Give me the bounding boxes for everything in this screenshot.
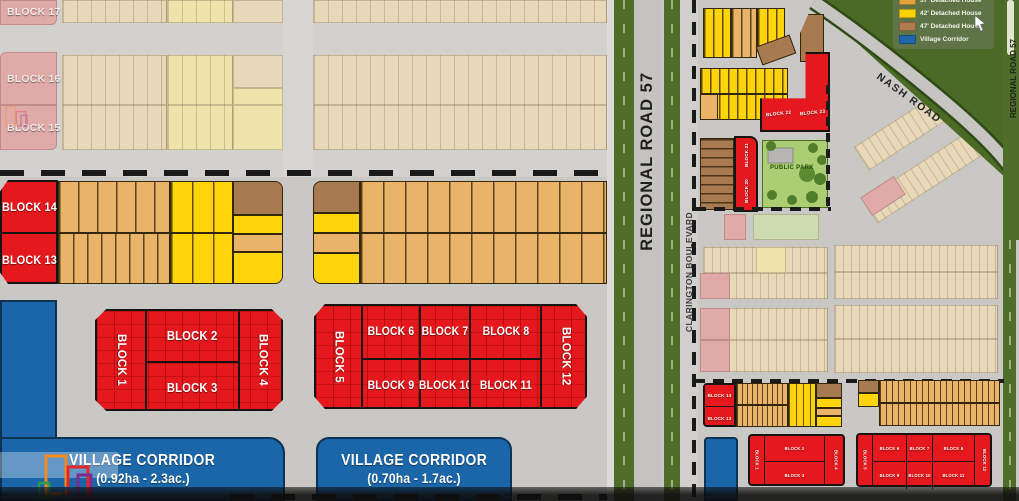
- mini-block-14-13: BLOCK 14 BLOCK 13: [703, 383, 736, 427]
- faded-lot-strip: [62, 0, 167, 23]
- public-park-label: PUBLIC PARK: [770, 165, 814, 171]
- block-12-label: BLOCK 12: [560, 327, 572, 385]
- village-corridor-column: [0, 300, 57, 440]
- block-6-label: BLOCK 6: [368, 326, 415, 338]
- legend-swatch-47-detached: [899, 22, 916, 31]
- lot-yellow: [233, 252, 283, 284]
- block-3: BLOCK 3: [147, 363, 238, 413]
- inset-lot-brown-column: [700, 138, 734, 210]
- block-2-label: BLOCK 2: [167, 329, 218, 343]
- mini-block-group-5-12: BLOCK 5 BLOCK 6 BLOCK 7 BLOCK 8 BLOCK 9 …: [856, 433, 992, 487]
- block-14-13-group: BLOCK 14 BLOCK 13: [0, 180, 58, 284]
- mini-block-group-1-4: BLOCK 1 BLOCK 2 BLOCK 3 BLOCK 4: [748, 434, 845, 486]
- bottom-dark-bar: [0, 487, 1019, 501]
- faded-lot-strip: [167, 105, 233, 150]
- faded-lot-strip: [313, 55, 607, 105]
- legend-swatch-37-detached: [899, 0, 916, 5]
- mini-lot-tan: [816, 408, 842, 416]
- faded-area: BLOCK 17 BLOCK 16 BLOCK 15: [0, 0, 612, 177]
- road-edge-strip: [607, 0, 614, 501]
- legend-label-village-corridor: Village Corridor: [920, 36, 969, 43]
- lot-strip-tan: [58, 233, 170, 284]
- mini-lot-brown: [858, 380, 879, 393]
- block-13: BLOCK 13: [2, 234, 56, 286]
- mini-block-8: BLOCK 8: [932, 435, 974, 462]
- faded-lot-strip: [167, 55, 233, 105]
- faded-block: [700, 308, 730, 340]
- block-16-label: BLOCK 16: [7, 73, 61, 85]
- faded-lot-strip: [834, 245, 998, 272]
- block-17-label: BLOCK 17: [7, 6, 61, 18]
- block-13-label: BLOCK 13: [2, 253, 57, 267]
- mini-block-3-label: BLOCK 3: [785, 473, 805, 478]
- verge-marking: [671, 0, 673, 501]
- block-21-label: BLOCK 21: [744, 143, 749, 167]
- mini-block-1: BLOCK 1: [750, 436, 765, 484]
- legend-label-47-detached: 47' Detached House: [920, 23, 982, 30]
- block-1: BLOCK 1: [97, 311, 147, 409]
- mini-block-6-label: BLOCK 6: [880, 446, 900, 451]
- block-4-label: BLOCK 4: [257, 334, 269, 386]
- lot-strip-tan: [360, 233, 607, 284]
- mini-block-5-label: BLOCK 5: [863, 450, 868, 470]
- watermark-logo-faint: [3, 92, 37, 142]
- park-trees: [763, 141, 826, 206]
- legend-row: 37' Detached House: [899, 0, 988, 6]
- mini-lot-strip-tan: [879, 380, 1000, 403]
- mini-lot-strip-tan: [736, 383, 788, 405]
- faded-block: [700, 273, 730, 299]
- lot-yellow: [313, 253, 360, 284]
- block-7: BLOCK 7: [419, 306, 469, 360]
- lot-tan: [313, 233, 360, 253]
- faded-lot-strip: [834, 305, 998, 339]
- regional-road-57-right-label: REGIONAL ROAD 57: [1009, 38, 1018, 118]
- block-5: BLOCK 5: [316, 306, 363, 407]
- legend-row: Village Corridor: [899, 34, 988, 45]
- block-4: BLOCK 4: [238, 311, 285, 409]
- mini-block-7: BLOCK 7: [906, 435, 932, 462]
- block-9-label: BLOCK 9: [368, 380, 415, 392]
- block-7-label: BLOCK 7: [422, 326, 469, 338]
- block-8-label: BLOCK 8: [482, 326, 529, 338]
- block-10-label: BLOCK 10: [419, 380, 472, 392]
- mini-lot-strip-tan: [736, 405, 788, 427]
- mini-block-8-label: BLOCK 8: [944, 446, 964, 451]
- legend-label-37-detached: 37' Detached House: [920, 0, 982, 4]
- overview-map: NASH ROAD REGIONAL ROAD 57 BLOCK 22 BLOC…: [698, 0, 1019, 501]
- mini-block-4: BLOCK 4: [824, 436, 847, 484]
- block-group-1-4: BLOCK 1 BLOCK 2 BLOCK 3 BLOCK 4: [95, 309, 283, 411]
- village-corridor-2-area: (0.70ha - 1.7ac.): [367, 471, 461, 486]
- faded-lot-strip: [313, 105, 607, 150]
- mini-block-14: BLOCK 14: [705, 385, 734, 407]
- faded-lot-strip: [233, 55, 283, 88]
- mini-lot-yellow: [816, 416, 842, 427]
- lot-brown: [313, 181, 360, 213]
- dashed-inset-boundary-bottom: [695, 207, 831, 211]
- inset-lot-yellow: [703, 8, 731, 58]
- dashed-inset-boundary-right: [826, 85, 830, 207]
- mini-block-7-label: BLOCK 7: [910, 446, 930, 451]
- mouse-cursor-icon: [974, 15, 988, 33]
- faded-block: [700, 340, 730, 372]
- lot-strip-tan: [360, 181, 607, 233]
- regional-road-57-label: REGIONAL ROAD 57: [638, 72, 657, 251]
- faded-lot-strip: [167, 0, 233, 23]
- legend-label-42-detached: 42' Detached House: [920, 10, 982, 17]
- block-22-label: BLOCK 22: [766, 111, 792, 119]
- lot-strip-yellow: [170, 233, 233, 284]
- lot-strip-yellow: [170, 181, 233, 233]
- verge-marking: [1009, 240, 1011, 501]
- mini-lot-strip-yellow: [788, 383, 816, 427]
- mini-block-2-label: BLOCK 2: [785, 446, 805, 451]
- detail-map: BLOCK 17 BLOCK 16 BLOCK 15: [0, 0, 612, 501]
- block-11-label: BLOCK 11: [479, 380, 531, 392]
- block-5-label: BLOCK 5: [333, 331, 345, 383]
- lot-brown: [233, 181, 283, 215]
- block-23-label: BLOCK 23: [800, 110, 826, 118]
- village-corridor-2-title: VILLAGE CORRIDOR: [341, 452, 487, 470]
- lot-strip-tan: [58, 181, 170, 233]
- mini-block-14-label: BLOCK 14: [708, 393, 732, 398]
- mini-lot-strip-tan: [879, 403, 1000, 426]
- mini-block-2: BLOCK 2: [765, 436, 824, 462]
- mini-block-13-label: BLOCK 13: [708, 416, 732, 421]
- inset-lot-tan: [731, 8, 757, 58]
- faded-lot-strip: [62, 55, 167, 105]
- faded-lot-strip: [756, 247, 786, 273]
- block-17: BLOCK 17: [0, 0, 57, 25]
- faded-lot-strip: [233, 0, 283, 23]
- faded-lot-strip: [233, 88, 283, 105]
- mini-block-6: BLOCK 6: [873, 435, 906, 462]
- mini-block-11-label: BLOCK 11: [942, 473, 964, 478]
- lot-tan: [233, 234, 283, 252]
- faded-lot-strip: [834, 339, 998, 373]
- mini-block-12-label: BLOCK 12: [982, 449, 987, 471]
- faded-cross-street: [283, 0, 313, 177]
- block-1-label: BLOCK 1: [115, 334, 127, 386]
- legend-swatch-village-corridor: [899, 35, 916, 44]
- site-plan-screenshot: BLOCK 17 BLOCK 16 BLOCK 15: [0, 0, 1019, 501]
- faded-lot-strip: [313, 0, 607, 23]
- mini-lot-yellow: [858, 393, 879, 407]
- block-20-21-strip: BLOCK 21 BLOCK 20: [734, 136, 758, 212]
- dashed-boundary-line: [0, 170, 610, 176]
- lot-yellow: [233, 215, 283, 234]
- mini-block-9: BLOCK 9: [873, 462, 906, 489]
- verge-marking: [623, 0, 625, 501]
- mini-block-11: BLOCK 11: [932, 462, 974, 489]
- lot-yellow: [313, 213, 360, 233]
- mini-block-1-label: BLOCK 1: [755, 450, 760, 470]
- public-park: PUBLIC PARK: [762, 140, 828, 208]
- block-11: BLOCK 11: [469, 360, 540, 411]
- block-group-5-12: BLOCK 5 BLOCK 6 BLOCK 7 BLOCK 8 BLOCK 9 …: [314, 304, 587, 409]
- grass-verge-right: [664, 0, 680, 501]
- block-14-label: BLOCK 14: [2, 200, 57, 214]
- block-10: BLOCK 10: [419, 360, 469, 411]
- mini-block-10-label: BLOCK 10: [908, 473, 930, 478]
- block-2: BLOCK 2: [147, 311, 238, 363]
- mini-block-12: BLOCK 12: [974, 435, 994, 485]
- block-12: BLOCK 12: [540, 306, 589, 407]
- regional-road-57: REGIONAL ROAD 57: [634, 0, 662, 501]
- dashed-inset-boundary-left: [692, 0, 696, 501]
- block-20-label: BLOCK 20: [744, 179, 749, 203]
- mini-lot-yellow: [816, 398, 842, 408]
- faded-lot-strip: [834, 272, 998, 299]
- block-6: BLOCK 6: [363, 306, 419, 360]
- mini-lot-brown: [816, 383, 842, 398]
- block-3-label: BLOCK 3: [167, 381, 218, 395]
- mini-block-9-label: BLOCK 9: [880, 473, 900, 478]
- faded-lot-strip: [62, 105, 167, 150]
- mini-block-10: BLOCK 10: [906, 462, 932, 489]
- inset-lot-yellow: [700, 68, 788, 94]
- faded-lot-strip: [233, 105, 283, 150]
- block-9: BLOCK 9: [363, 360, 419, 411]
- block-8: BLOCK 8: [469, 306, 540, 360]
- grass-verge-far-right: [1003, 240, 1016, 501]
- mini-block-13: BLOCK 13: [705, 407, 734, 429]
- mini-block-4-label: BLOCK 4: [834, 450, 839, 470]
- grass-verge-left: [614, 0, 634, 501]
- mini-block-3: BLOCK 3: [765, 462, 824, 488]
- inset-lot-tan: [700, 94, 718, 120]
- legend-swatch-42-detached: [899, 9, 916, 18]
- block-14: BLOCK 14: [2, 182, 56, 234]
- mini-block-5: BLOCK 5: [858, 435, 873, 485]
